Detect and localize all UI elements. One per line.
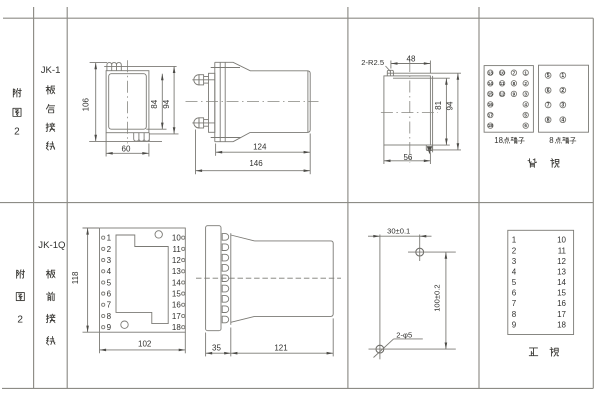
svg-text:6: 6 [107,290,112,299]
svg-text:5: 5 [524,113,527,118]
svg-text:1: 1 [561,73,564,79]
svg-text:121: 121 [274,344,288,353]
svg-text:13: 13 [557,268,566,277]
svg-text:JK-1Q: JK-1Q [38,240,65,251]
svg-text:12: 12 [172,256,181,265]
svg-text:94: 94 [162,99,171,108]
svg-text:4: 4 [561,118,564,124]
svg-text:7: 7 [547,103,550,109]
svg-text:8: 8 [513,81,516,86]
svg-text:15: 15 [488,92,494,97]
svg-text:35: 35 [212,344,221,353]
svg-text:4: 4 [524,102,527,107]
svg-text:56: 56 [403,153,412,162]
svg-text:2: 2 [512,246,517,255]
svg-text:8: 8 [107,312,112,321]
svg-text:14: 14 [557,278,566,287]
svg-text:124: 124 [253,142,267,151]
svg-text:18: 18 [494,136,503,145]
svg-text:3: 3 [512,257,517,266]
svg-text:6: 6 [512,289,517,298]
svg-text:11: 11 [500,81,505,86]
svg-text:16: 16 [172,301,181,310]
svg-text:3: 3 [524,92,527,97]
svg-text:2: 2 [524,81,527,86]
svg-text:60: 60 [122,144,131,153]
svg-text:15: 15 [172,290,181,299]
svg-text:81: 81 [434,100,443,109]
svg-text:2-R2.5: 2-R2.5 [361,58,384,67]
svg-text:2: 2 [107,245,112,254]
svg-text:18: 18 [557,320,566,329]
svg-text:8: 8 [512,310,517,319]
svg-text:18: 18 [172,323,181,332]
svg-text:11: 11 [172,245,181,254]
svg-text:16: 16 [488,102,494,107]
svg-text:2: 2 [17,314,23,325]
svg-text:13: 13 [172,267,181,276]
svg-text:14: 14 [488,81,494,86]
svg-text:118: 118 [71,271,80,284]
svg-text:7: 7 [107,301,112,310]
svg-text:10: 10 [172,234,181,243]
svg-text:18: 18 [488,123,494,128]
svg-text:30±0.1: 30±0.1 [387,227,410,236]
svg-text:2: 2 [14,127,20,138]
svg-text:1: 1 [107,234,112,243]
svg-text:5: 5 [107,278,112,287]
svg-text:102: 102 [138,340,152,349]
svg-text:17: 17 [488,113,494,118]
svg-text:1: 1 [512,236,517,245]
svg-text:4: 4 [107,267,112,276]
svg-text:10: 10 [500,70,506,75]
svg-text:100±0.2: 100±0.2 [432,284,441,311]
svg-text:17: 17 [172,312,181,321]
svg-text:94: 94 [446,101,455,110]
svg-text:JK-1: JK-1 [41,65,61,76]
svg-text:1: 1 [524,70,527,75]
svg-text:16: 16 [557,299,566,308]
svg-text:3: 3 [561,103,564,109]
svg-text:13: 13 [488,70,494,75]
svg-text:6: 6 [547,88,550,94]
svg-text:17: 17 [557,310,566,319]
svg-text:3: 3 [107,256,112,265]
svg-text:2: 2 [561,88,564,94]
svg-text:15: 15 [557,289,566,298]
svg-text:9: 9 [513,92,516,97]
svg-text:5: 5 [547,73,550,79]
svg-text:9: 9 [512,320,517,329]
svg-text:146: 146 [249,159,263,168]
svg-text:6: 6 [524,123,527,128]
svg-text:8: 8 [549,136,553,145]
svg-text:10: 10 [557,236,566,245]
svg-text:48: 48 [407,55,416,64]
svg-text:14: 14 [172,278,181,287]
svg-text:5: 5 [512,278,517,287]
svg-text:7: 7 [513,70,516,75]
svg-text:2-φ5: 2-φ5 [396,330,412,339]
svg-text:8: 8 [547,118,550,124]
svg-text:11: 11 [558,246,567,255]
svg-text:106: 106 [81,97,90,111]
svg-text:12: 12 [500,92,506,97]
svg-text:4: 4 [512,268,517,277]
svg-text:7: 7 [512,299,517,308]
svg-text:9: 9 [107,323,112,332]
svg-text:12: 12 [557,257,566,266]
svg-text:84: 84 [150,99,159,108]
